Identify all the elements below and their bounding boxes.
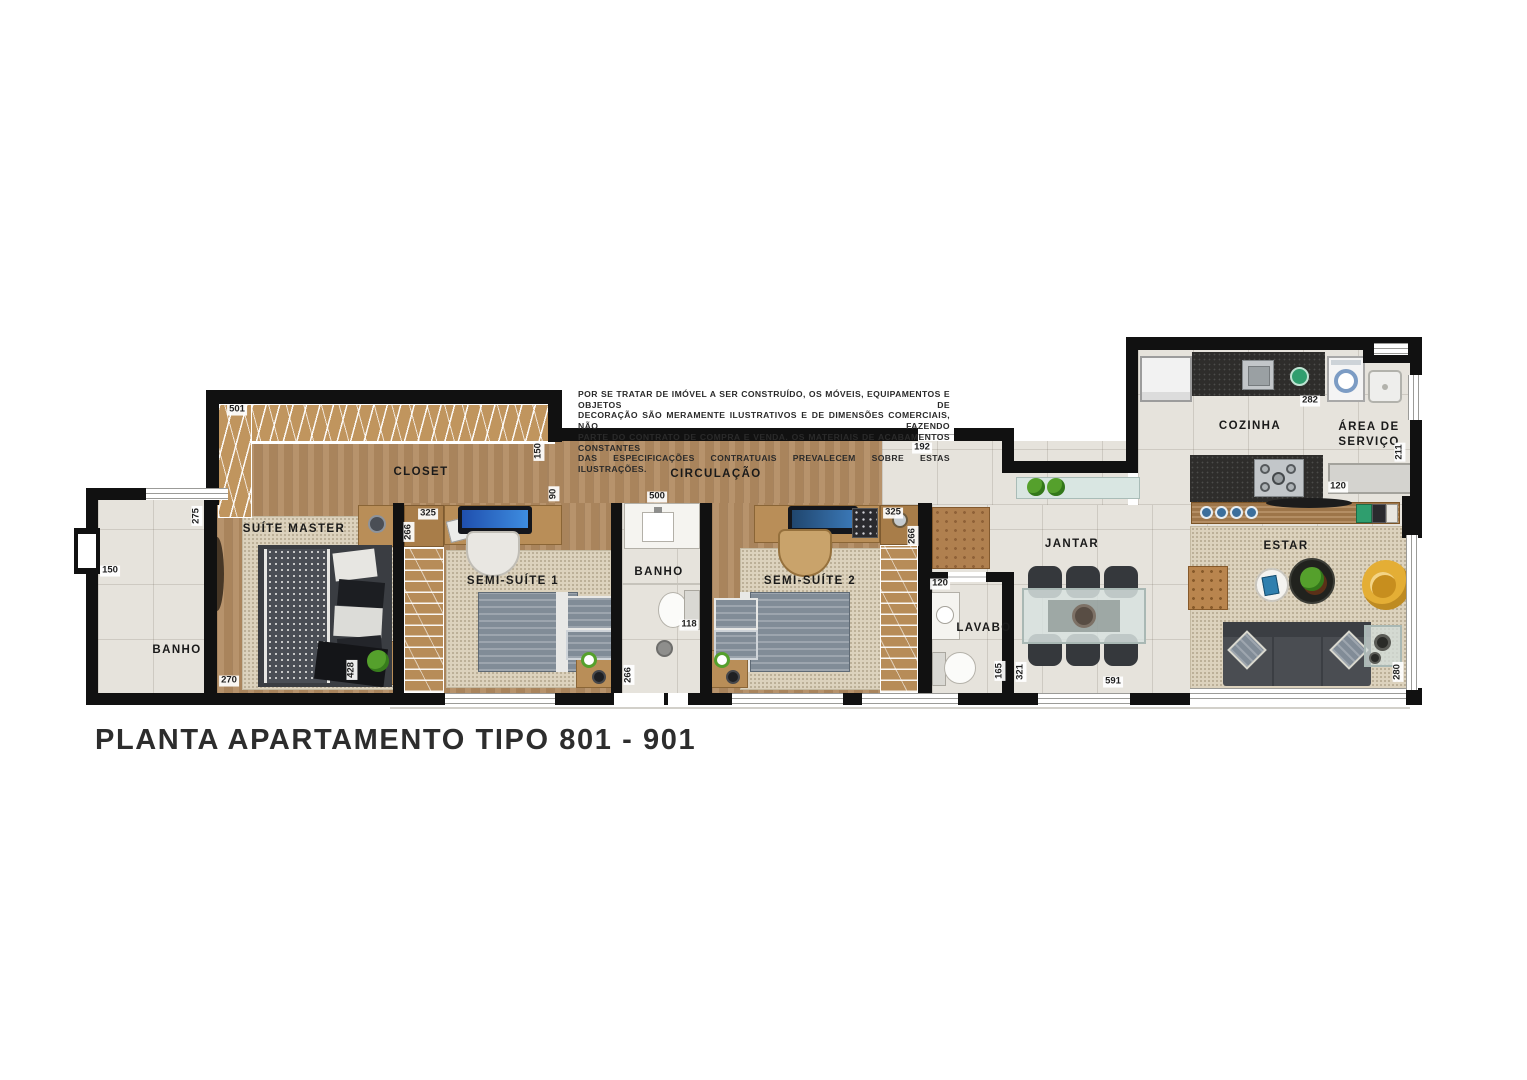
dimension-label: 266 [624, 665, 635, 685]
bar-items [1356, 504, 1372, 523]
sink-icon [642, 512, 674, 542]
sofa-divider [1272, 637, 1274, 686]
burner [1286, 464, 1296, 474]
dimension-label: 150 [534, 441, 545, 461]
dimension-label: 591 [1103, 677, 1123, 688]
photo-frames [852, 508, 878, 538]
room-label-semi-suite-1: SEMI-SUÍTE 1 [467, 575, 559, 587]
bar-items [1372, 504, 1386, 523]
page-title: PLANTA APARTAMENTO TIPO 801 - 901 [95, 724, 696, 757]
dimension-label: 266 [908, 526, 919, 546]
divider-line [622, 583, 700, 585]
range-hood [1266, 498, 1352, 508]
wall-segment [1002, 572, 1014, 705]
room-label-lavabo: LAVABO [956, 622, 1011, 634]
table-lamp [581, 652, 597, 668]
dimension-label: 150 [100, 566, 120, 577]
dimension-label: 501 [227, 405, 247, 416]
wall-segment [1002, 461, 1138, 473]
banho-left-floor [98, 500, 204, 695]
burner [1260, 464, 1270, 474]
window [1408, 375, 1422, 420]
room-label-semi-suite-2: SEMI-SUÍTE 2 [764, 575, 856, 587]
room-label-circulacao: CIRCULAÇÃO [670, 468, 761, 480]
table-lamp [714, 652, 730, 668]
door-opening [668, 693, 688, 705]
fridge [1140, 356, 1192, 402]
washer-panel [1331, 360, 1361, 365]
wall-segment [86, 488, 146, 500]
monitor [458, 506, 532, 534]
disclaimer-text: POR SE TRATAR DE IMÓVEL A SER CONSTRUÍDO… [578, 389, 950, 475]
room-label-suite-master: SUÍTE MASTER [243, 523, 345, 535]
wall-segment [611, 503, 622, 695]
plate [1200, 506, 1213, 519]
decor-spiral [1374, 634, 1391, 651]
plant-vase [1300, 567, 1324, 591]
armchair-yellow [1362, 560, 1410, 610]
sofa [1223, 622, 1371, 686]
basin [936, 606, 954, 624]
wall-segment [204, 500, 217, 700]
dimension-label: 325 [418, 509, 438, 520]
dimension-label: 428 [347, 660, 358, 680]
disclaimer-line: PARTE DO CONTRATO DE COMPRA E VENDA. OS … [578, 432, 950, 453]
dimension-label: 165 [995, 661, 1006, 681]
dimension-label: 266 [404, 522, 415, 542]
disclaimer-line: DAS ESPECIFICAÇÕES CONTRATUAIS PREVALECE… [578, 453, 950, 474]
books [1261, 575, 1279, 596]
wall-segment [86, 488, 98, 705]
dimension-label: 192 [912, 443, 932, 454]
wall-segment [1402, 496, 1422, 538]
dimension-label: 118 [679, 620, 698, 631]
dimension-label: 500 [647, 492, 667, 503]
pillow [714, 598, 758, 630]
sink-basin [1248, 366, 1270, 386]
wall-niche [78, 534, 96, 568]
bar-items [1386, 504, 1398, 523]
plate [1215, 506, 1228, 519]
monitor-screen [792, 510, 854, 528]
floor-plan: PLANTA APARTAMENTO TIPO 801 - 901 POR SE… [0, 0, 1527, 1080]
speaker [726, 670, 740, 684]
dimension-label: 90 [549, 487, 560, 502]
potted-plant [1027, 478, 1045, 496]
window [146, 488, 228, 500]
dimension-label: 280 [1393, 662, 1404, 682]
potted-plant [1047, 478, 1065, 496]
armchair-seat [1370, 572, 1396, 598]
dimension-label: 325 [883, 508, 903, 519]
room-label-cozinha: COZINHA [1219, 420, 1281, 432]
pillow [566, 596, 614, 630]
dimension-label: 321 [1016, 662, 1027, 682]
dimension-label: 211 [1395, 442, 1406, 461]
kitchen-sink-icon [1242, 360, 1274, 390]
burner [1286, 482, 1296, 492]
washer-drum [1334, 369, 1358, 393]
burner [1272, 472, 1285, 485]
dimension-label: 275 [192, 506, 203, 526]
door-opening [614, 693, 664, 705]
wardrobe [880, 545, 918, 693]
wall-segment [918, 503, 932, 695]
wall-segment [1126, 345, 1138, 473]
balcony-rail-line [390, 707, 1410, 709]
dimension-label: 120 [930, 579, 950, 590]
room-label-estar: ESTAR [1263, 540, 1308, 552]
centerpiece-bowl [1072, 604, 1096, 628]
closet-rack-top [224, 404, 555, 442]
cooktop-icon [1254, 459, 1304, 497]
dimension-label: 120 [1328, 482, 1348, 493]
decor-spiral [1369, 652, 1381, 664]
pillow [332, 549, 377, 582]
single-bed [750, 592, 850, 672]
potted-plant [367, 650, 389, 672]
wall-segment [700, 503, 712, 695]
door-opening [948, 572, 986, 582]
plate [1245, 506, 1258, 519]
window [732, 693, 843, 705]
disclaimer-line: DECORAÇÃO SÃO MERAMENTE ILUSTRATIVOS E D… [578, 410, 950, 431]
speaker [592, 670, 606, 684]
burner [1260, 482, 1270, 492]
pouf [1188, 566, 1228, 610]
pillow [337, 579, 385, 609]
wall-segment [1406, 688, 1422, 705]
wardrobe [404, 547, 444, 693]
sofa-divider [1321, 637, 1323, 686]
window [445, 693, 555, 705]
dimension-label: 282 [1300, 396, 1320, 407]
window [1374, 343, 1408, 355]
closet-rack-left [218, 404, 252, 518]
window [1038, 693, 1130, 705]
shower-head-icon [656, 640, 673, 657]
plate [1230, 506, 1243, 519]
pillow [333, 606, 383, 638]
dimension-label: 270 [219, 676, 239, 687]
monitor-screen [462, 510, 528, 528]
room-label-closet: CLOSET [393, 466, 448, 478]
bench [932, 507, 990, 569]
window [1406, 535, 1418, 690]
room-label-jantar: JANTAR [1045, 538, 1099, 550]
washing-machine [1327, 356, 1365, 402]
window [862, 693, 958, 705]
dish-rack [1290, 367, 1309, 386]
tank-drain [1382, 384, 1388, 390]
closet-shelf-line [252, 442, 555, 444]
faucet-icon [654, 507, 662, 513]
disclaimer-line: POR SE TRATAR DE IMÓVEL A SER CONSTRUÍDO… [578, 389, 950, 410]
wall-segment [206, 390, 562, 404]
laundry-tank [1368, 370, 1402, 403]
toilet-icon [944, 652, 976, 684]
window [1190, 688, 1406, 701]
table-lamp [368, 515, 386, 533]
room-label-banho-meio: BANHO [634, 566, 683, 578]
room-label-banho-esquerdo: BANHO [152, 644, 201, 656]
